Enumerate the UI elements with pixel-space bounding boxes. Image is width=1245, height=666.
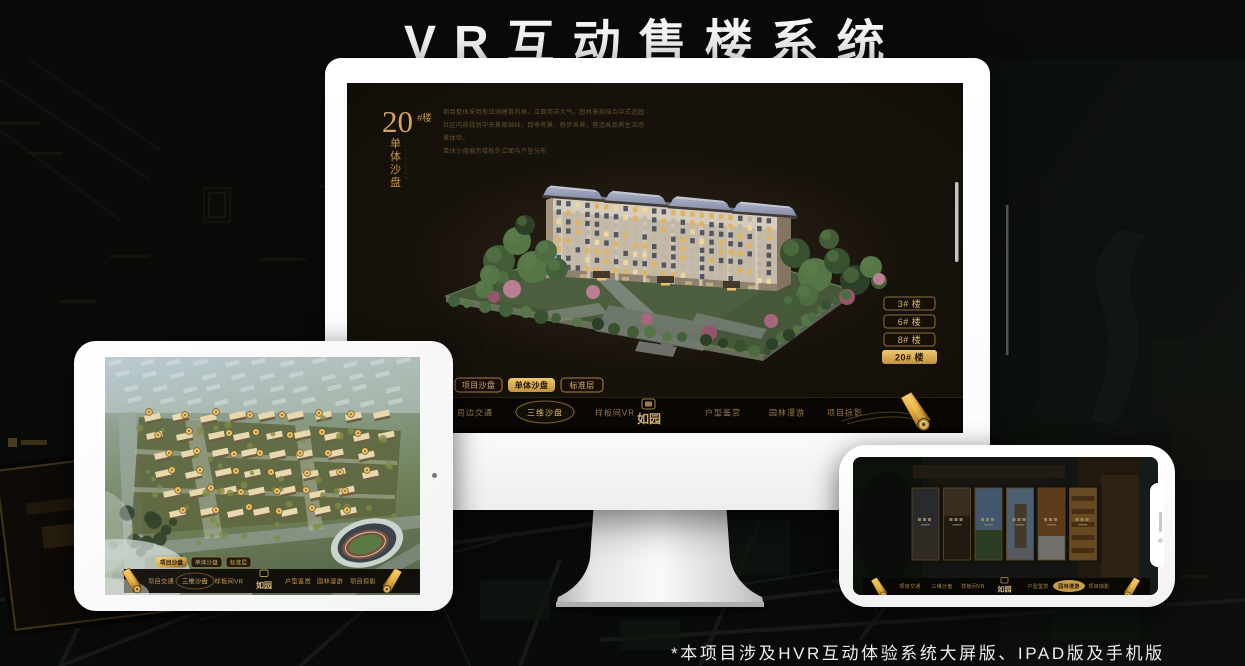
svg-text:标准层: 标准层 (569, 380, 594, 390)
svg-text:3# 楼: 3# 楼 (898, 298, 922, 309)
svg-text:社区内部规划中央景观轴线，四季有景、移步异景，营造高品质生活: 社区内部规划中央景观轴线，四季有景、移步异景，营造高品质生活场 (443, 121, 644, 129)
svg-text:户型鉴赏: 户型鉴赏 (705, 408, 741, 418)
svg-text:6# 楼: 6# 楼 (898, 316, 922, 327)
svg-text:项目掠影: 项目掠影 (1088, 583, 1109, 590)
svg-text:20# 楼: 20# 楼 (895, 352, 924, 363)
svg-text:三维沙盘: 三维沙盘 (527, 408, 563, 418)
svg-text:园林漫游: 园林漫游 (1058, 583, 1079, 590)
svg-text:如园: 如园 (637, 411, 661, 426)
svg-text:样板间VR: 样板间VR (961, 583, 985, 590)
svg-text:项目交通: 项目交通 (899, 583, 920, 590)
svg-text:园林漫游: 园林漫游 (769, 408, 805, 418)
svg-text:单体沙盘: 单体沙盘 (515, 380, 549, 390)
svg-text:样板间VR: 样板间VR (595, 408, 635, 418)
svg-text:体: 体 (390, 149, 401, 163)
svg-text:单: 单 (390, 137, 401, 150)
svg-text:20: 20 (382, 104, 413, 139)
svg-text:标准层: 标准层 (230, 559, 248, 567)
svg-text:沙: 沙 (390, 163, 401, 176)
svg-text:单体沙盘展示楼栋外立面与户型分布: 单体沙盘展示楼栋外立面与户型分布 (443, 147, 547, 155)
svg-text:样板间VR: 样板间VR (215, 578, 244, 586)
svg-text:园林漫游: 园林漫游 (317, 578, 343, 586)
svg-text:周边交通: 周边交通 (457, 408, 493, 418)
svg-text:如园: 如园 (998, 585, 1012, 594)
svg-text:项目沙盘: 项目沙盘 (160, 559, 183, 567)
svg-text:三维沙盘: 三维沙盘 (182, 578, 208, 586)
svg-text:如园: 如园 (256, 580, 272, 590)
svg-text:项目交通: 项目交通 (148, 578, 174, 586)
svg-text:户型鉴赏: 户型鉴赏 (285, 578, 311, 586)
svg-text:8# 楼: 8# 楼 (898, 334, 922, 345)
svg-text:项目沙盘: 项目沙盘 (462, 380, 496, 390)
svg-text:项目整体采用新亚洲建筑风格，立面简洁大气，园林景观结合中式造: 项目整体采用新亚洲建筑风格，立面简洁大气，园林景观结合中式造园 (443, 108, 644, 116)
svg-text:项目掠影: 项目掠影 (350, 578, 376, 586)
svg-text:盘: 盘 (390, 175, 401, 189)
svg-text:户型鉴赏: 户型鉴赏 (1027, 583, 1048, 590)
svg-text:景体验。: 景体验。 (443, 134, 469, 142)
svg-text:单体沙盘: 单体沙盘 (195, 559, 218, 567)
svg-text:#楼: #楼 (417, 112, 432, 124)
svg-text:三维沙盘: 三维沙盘 (931, 583, 952, 590)
